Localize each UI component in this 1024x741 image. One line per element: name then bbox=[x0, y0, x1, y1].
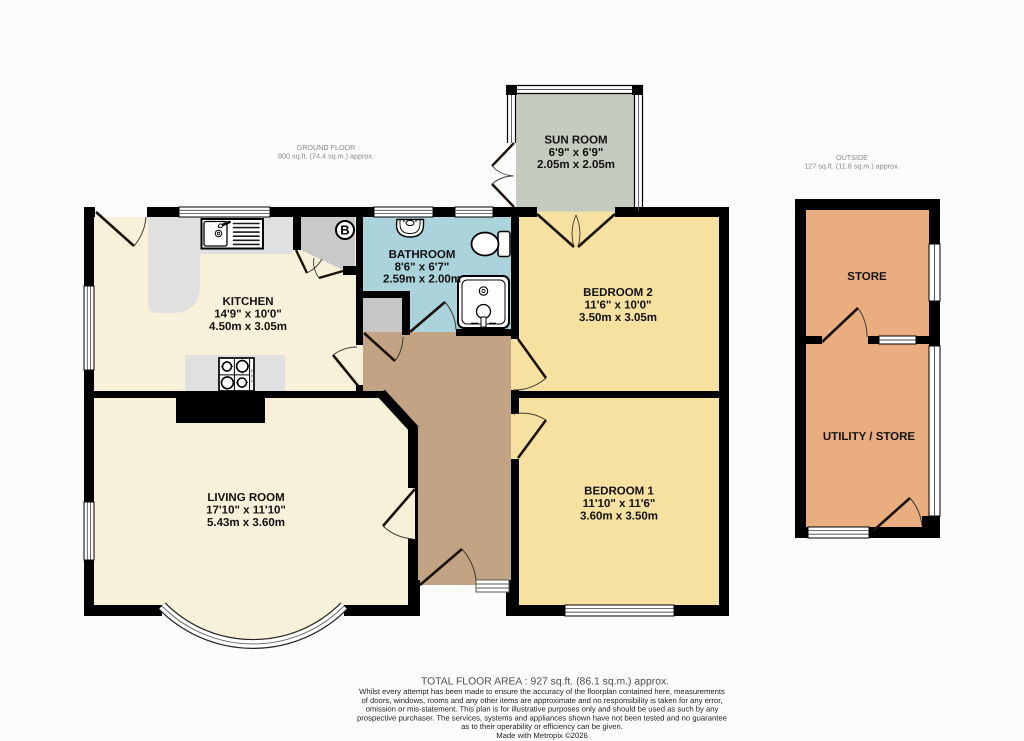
svg-text:BEDROOM 2: BEDROOM 2 bbox=[583, 287, 653, 299]
svg-text:3.50m x 3.05m: 3.50m x 3.05m bbox=[579, 312, 657, 324]
svg-text:as to their operability or eff: as to their operability or efficiency ca… bbox=[461, 722, 623, 731]
svg-text:KITCHEN: KITCHEN bbox=[222, 296, 273, 308]
svg-text:B: B bbox=[340, 223, 349, 238]
svg-text:SUN ROOM: SUN ROOM bbox=[544, 135, 607, 147]
svg-text:3.60m x 3.50m: 3.60m x 3.50m bbox=[580, 511, 658, 523]
svg-text:2.59m x 2.00m: 2.59m x 2.00m bbox=[383, 274, 461, 286]
svg-text:prospective purchaser. The ser: prospective purchaser. The services, sys… bbox=[357, 713, 727, 722]
svg-text:UTILITY / STORE: UTILITY / STORE bbox=[823, 431, 916, 443]
svg-text:LIVING ROOM: LIVING ROOM bbox=[207, 492, 284, 504]
svg-text:17'10" x 11'10": 17'10" x 11'10" bbox=[206, 505, 286, 517]
svg-text:BATHROOM: BATHROOM bbox=[389, 249, 456, 261]
svg-text:2.05m x 2.05m: 2.05m x 2.05m bbox=[537, 159, 615, 171]
svg-text:6'9" x 6'9": 6'9" x 6'9" bbox=[549, 147, 604, 159]
svg-text:11'10" x 11'6": 11'10" x 11'6" bbox=[583, 498, 656, 510]
svg-text:of doors, windows, rooms and a: of doors, windows, rooms and any other i… bbox=[361, 696, 722, 705]
svg-text:Made with Metropix ©2026: Made with Metropix ©2026 bbox=[496, 731, 588, 740]
svg-text:14'9" x 10'0": 14'9" x 10'0" bbox=[214, 309, 282, 321]
svg-text:omission or mis-statement. Thi: omission or mis-statement. This plan is … bbox=[366, 705, 719, 714]
svg-text:800 sq.ft. (74.4 sq.m.) approx: 800 sq.ft. (74.4 sq.m.) approx. bbox=[278, 152, 374, 161]
svg-text:11'6" x 10'0": 11'6" x 10'0" bbox=[585, 300, 652, 312]
svg-text:STORE: STORE bbox=[847, 271, 887, 283]
svg-text:8'6" x 6'7": 8'6" x 6'7" bbox=[395, 261, 450, 273]
svg-text:BEDROOM 1: BEDROOM 1 bbox=[584, 486, 654, 498]
svg-text:5.43m x 3.60m: 5.43m x 3.60m bbox=[207, 517, 285, 529]
svg-text:4.50m x 3.05m: 4.50m x 3.05m bbox=[209, 321, 287, 333]
svg-text:TOTAL FLOOR AREA : 927 sq.ft.: TOTAL FLOOR AREA : 927 sq.ft. (86.1 sq.m… bbox=[421, 677, 669, 688]
svg-text:Whilst every attempt has been: Whilst every attempt has been made to en… bbox=[359, 687, 725, 696]
svg-text:127 sq.ft. (11.8 sq.m.) approx: 127 sq.ft. (11.8 sq.m.) approx. bbox=[804, 162, 899, 171]
